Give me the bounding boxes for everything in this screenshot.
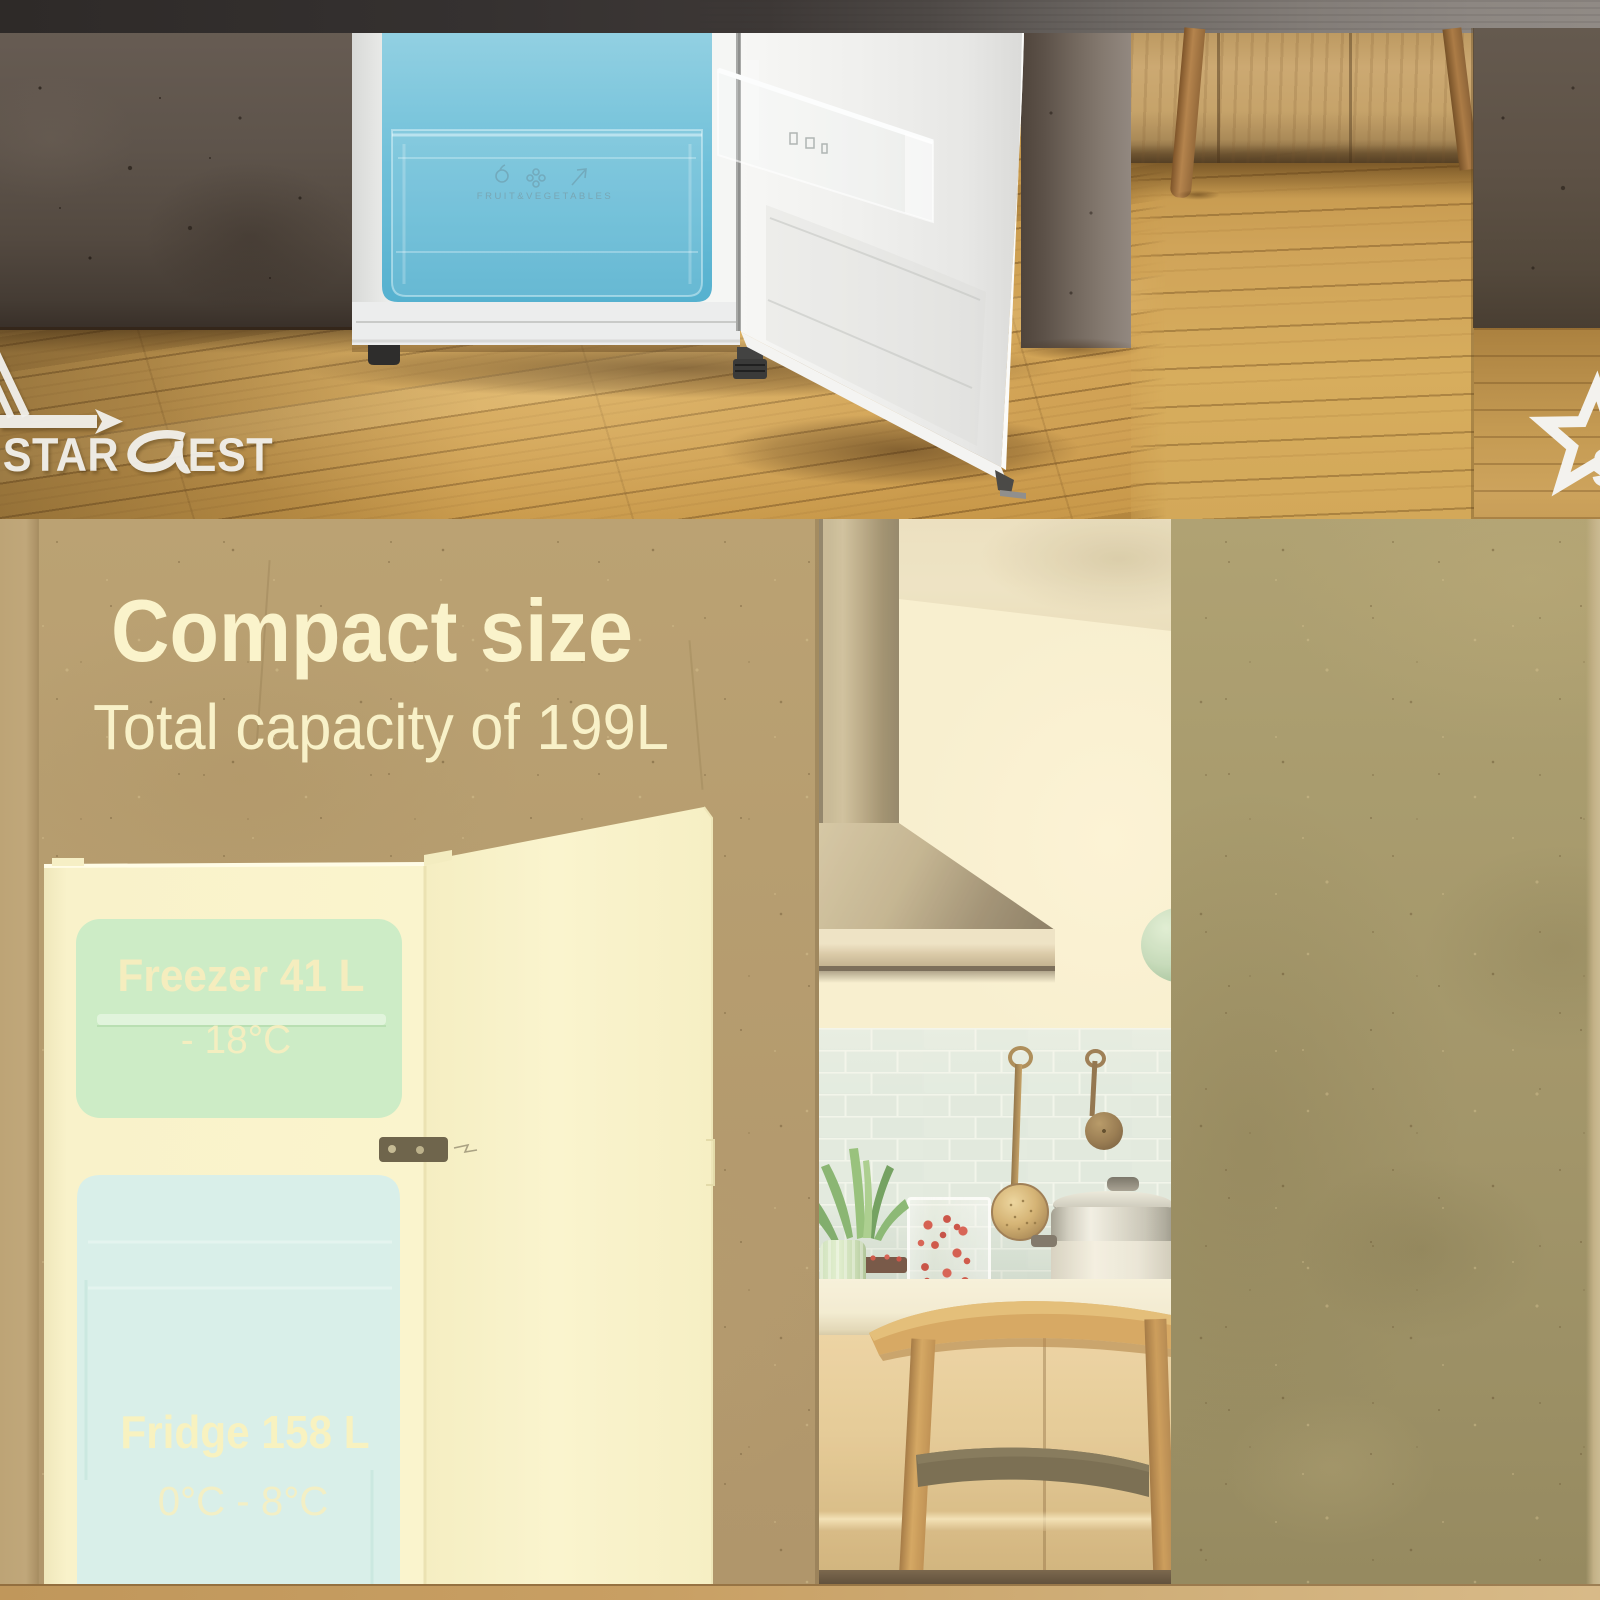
- svg-text:EST: EST: [188, 428, 273, 481]
- svg-text:S: S: [1591, 436, 1600, 499]
- svg-text:STAR: STAR: [3, 428, 119, 481]
- svg-text:FRUIT&VEGETABLES: FRUIT&VEGETABLES: [477, 191, 613, 202]
